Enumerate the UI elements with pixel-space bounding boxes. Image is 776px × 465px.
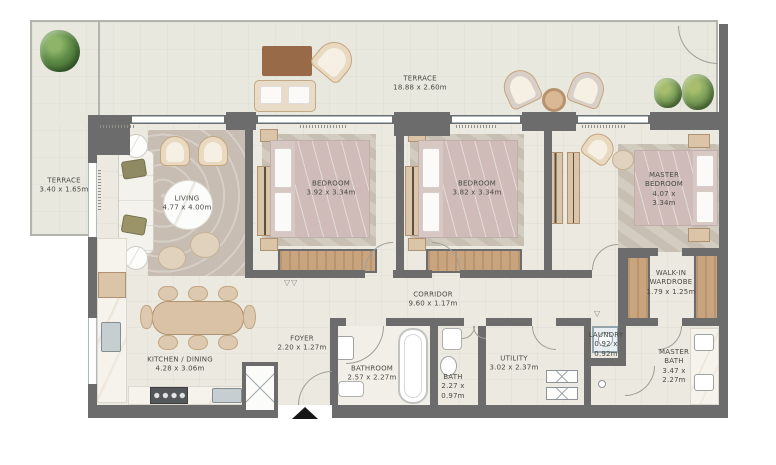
utility-unit bbox=[546, 387, 578, 400]
kitchen-sink bbox=[101, 322, 121, 352]
entrance-arrow bbox=[292, 407, 318, 419]
dining-chair bbox=[158, 335, 178, 350]
room-dims: 3.82 x 3.34m bbox=[450, 189, 504, 198]
wall bbox=[88, 115, 97, 165]
room-label-bedroom-2: BEDROOM 3.82 x 3.34m bbox=[450, 180, 504, 199]
room-name: LIVING bbox=[162, 195, 212, 204]
pouf bbox=[612, 150, 634, 170]
plant bbox=[654, 78, 682, 108]
kitchen-cabinet bbox=[98, 272, 126, 298]
wardrobe-closet bbox=[694, 254, 719, 320]
room-label-kitchen-dining: KITCHEN / DINING 4.28 x 3.06m bbox=[140, 356, 220, 375]
wardrobe bbox=[567, 152, 580, 224]
nightstand bbox=[408, 238, 426, 251]
room-label-bath: BATH 2.27 x 0.97m bbox=[430, 373, 476, 401]
room-dims: 2.27 x 0.97m bbox=[430, 382, 476, 401]
slider-track bbox=[98, 170, 101, 210]
terrace-table bbox=[542, 88, 566, 112]
terrace-mat bbox=[262, 46, 312, 76]
room-name: BEDROOM bbox=[450, 180, 504, 189]
sofa-pillow bbox=[121, 214, 148, 236]
room-label-utility: UTILITY 3.02 x 2.37m bbox=[487, 355, 541, 374]
wall bbox=[552, 270, 592, 278]
dining-chair bbox=[218, 335, 238, 350]
room-label-living: LIVING 4.77 x 4.00m bbox=[162, 195, 212, 214]
room-name: MASTER BATH bbox=[651, 348, 697, 367]
room-dims: 9.60 x 1.17m bbox=[403, 300, 463, 309]
bed-pillow bbox=[422, 148, 440, 188]
room-dims: 2.20 x 1.27m bbox=[274, 344, 330, 353]
kitchen-sink-2 bbox=[212, 388, 242, 403]
room-dims: 18.88 x 2.60m bbox=[388, 84, 452, 93]
window bbox=[132, 116, 224, 123]
window bbox=[452, 116, 520, 123]
bifold-door-mark: ▽ bbox=[594, 310, 601, 318]
room-name: FOYER bbox=[274, 335, 330, 344]
nightstand bbox=[688, 228, 710, 242]
dining-chair bbox=[140, 305, 153, 329]
bed-pillow bbox=[274, 192, 292, 232]
bathtub bbox=[398, 328, 428, 404]
slider-track bbox=[100, 125, 134, 128]
kitchen-counter bbox=[97, 238, 127, 403]
pouf bbox=[190, 232, 220, 258]
window bbox=[88, 318, 97, 384]
room-dims: 2.57 x 2.27m bbox=[345, 374, 399, 383]
wall bbox=[544, 123, 552, 278]
room-dims: 4.77 x 4.00m bbox=[162, 204, 212, 213]
armchair bbox=[160, 136, 190, 166]
wall bbox=[682, 318, 728, 326]
wall bbox=[719, 24, 728, 418]
toilet bbox=[442, 328, 462, 350]
room-label-bathroom: BATHROOM 2.57 x 2.27m bbox=[345, 365, 399, 384]
room-dims: 4.07 x 3.34m bbox=[640, 190, 688, 209]
room-dims: 3.47 x 2.27m bbox=[651, 367, 697, 386]
sofa-pillow bbox=[121, 158, 148, 180]
window bbox=[88, 163, 97, 237]
dining-table bbox=[152, 301, 244, 335]
room-name: LAUNDRY bbox=[582, 331, 630, 340]
wall bbox=[556, 318, 584, 326]
room-name: MASTER BEDROOM bbox=[640, 171, 688, 190]
wall bbox=[386, 318, 464, 326]
dining-chair bbox=[243, 305, 256, 329]
room-label-master-bath: MASTER BATH 3.47 x 2.27m bbox=[651, 348, 697, 386]
nightstand bbox=[260, 238, 278, 251]
side-table bbox=[124, 246, 148, 270]
slider-track bbox=[582, 125, 626, 128]
wall bbox=[650, 112, 728, 130]
floor-plan: ▽▽ ▽ bbox=[0, 0, 776, 465]
room-label-master-bedroom: MASTER BEDROOM 4.07 x 3.34m bbox=[640, 171, 688, 209]
dining-chair bbox=[188, 286, 208, 301]
terrace-cushion bbox=[288, 86, 310, 104]
wall bbox=[88, 235, 97, 320]
armchair bbox=[198, 136, 228, 166]
room-name: WALK-IN WARDROBE bbox=[645, 269, 697, 288]
wall bbox=[682, 248, 728, 256]
slider-track bbox=[300, 125, 346, 128]
room-name: KITCHEN / DINING bbox=[140, 356, 220, 365]
wall bbox=[584, 358, 618, 366]
wall bbox=[626, 248, 658, 256]
room-label-terrace-top: TERRACE 18.88 x 2.60m bbox=[388, 75, 452, 94]
wall bbox=[332, 405, 728, 418]
room-label-laundry: LAUNDRY 0.92 x 0.92m bbox=[582, 331, 630, 359]
terrace-cushion bbox=[260, 86, 282, 104]
stove bbox=[150, 387, 188, 404]
room-name: BATHROOM bbox=[345, 365, 399, 374]
wall bbox=[396, 123, 404, 278]
room-name: UTILITY bbox=[487, 355, 541, 364]
bed-pillow bbox=[696, 191, 714, 223]
room-dims: 1.79 x 1.25m bbox=[645, 288, 697, 297]
master-bath-sink bbox=[694, 374, 714, 391]
dining-chair bbox=[158, 286, 178, 301]
dining-chair bbox=[188, 335, 208, 350]
room-dims: 4.28 x 3.06m bbox=[140, 365, 220, 374]
room-dims: 3.92 x 3.34m bbox=[304, 189, 358, 198]
wall bbox=[88, 382, 97, 418]
plant bbox=[40, 30, 80, 72]
slider-track bbox=[456, 125, 496, 128]
master-bath-sink bbox=[694, 334, 714, 351]
room-name: TERRACE bbox=[388, 75, 452, 84]
room-label-foyer: FOYER 2.20 x 1.27m bbox=[274, 335, 330, 354]
room-label-bedroom-1: BEDROOM 3.92 x 3.34m bbox=[304, 180, 358, 199]
pouf bbox=[158, 246, 186, 270]
bifold-door-mark: ▽▽ bbox=[284, 279, 298, 287]
duct-shaft bbox=[242, 362, 278, 414]
terrace-top-floor bbox=[30, 20, 718, 123]
utility-unit bbox=[546, 370, 578, 383]
room-name: TERRACE bbox=[37, 177, 91, 186]
room-name: BATH bbox=[430, 373, 476, 382]
shower-head bbox=[598, 380, 606, 388]
room-name: CORRIDOR bbox=[403, 291, 463, 300]
room-label-corridor: CORRIDOR 9.60 x 1.17m bbox=[403, 291, 463, 310]
window bbox=[578, 116, 648, 123]
bed-pillow bbox=[422, 192, 440, 232]
bed-pillow bbox=[274, 148, 292, 188]
wall bbox=[245, 123, 253, 278]
wall bbox=[460, 270, 544, 278]
nightstand bbox=[688, 134, 710, 148]
wall bbox=[486, 318, 532, 326]
room-dims: 3.40 x 1.65m bbox=[37, 186, 91, 195]
plant bbox=[682, 74, 714, 110]
dining-chair bbox=[218, 286, 238, 301]
wall bbox=[393, 270, 432, 278]
window bbox=[258, 116, 392, 123]
room-label-walk-in-wardrobe: WALK-IN WARDROBE 1.79 x 1.25m bbox=[645, 269, 697, 297]
room-dims: 3.02 x 2.37m bbox=[487, 364, 541, 373]
wall bbox=[618, 318, 658, 326]
room-dims: 0.92 x 0.92m bbox=[582, 340, 630, 359]
room-label-terrace-left: TERRACE 3.40 x 1.65m bbox=[37, 177, 91, 196]
room-name: BEDROOM bbox=[304, 180, 358, 189]
wall bbox=[253, 270, 365, 278]
bed-pillow bbox=[696, 155, 714, 187]
